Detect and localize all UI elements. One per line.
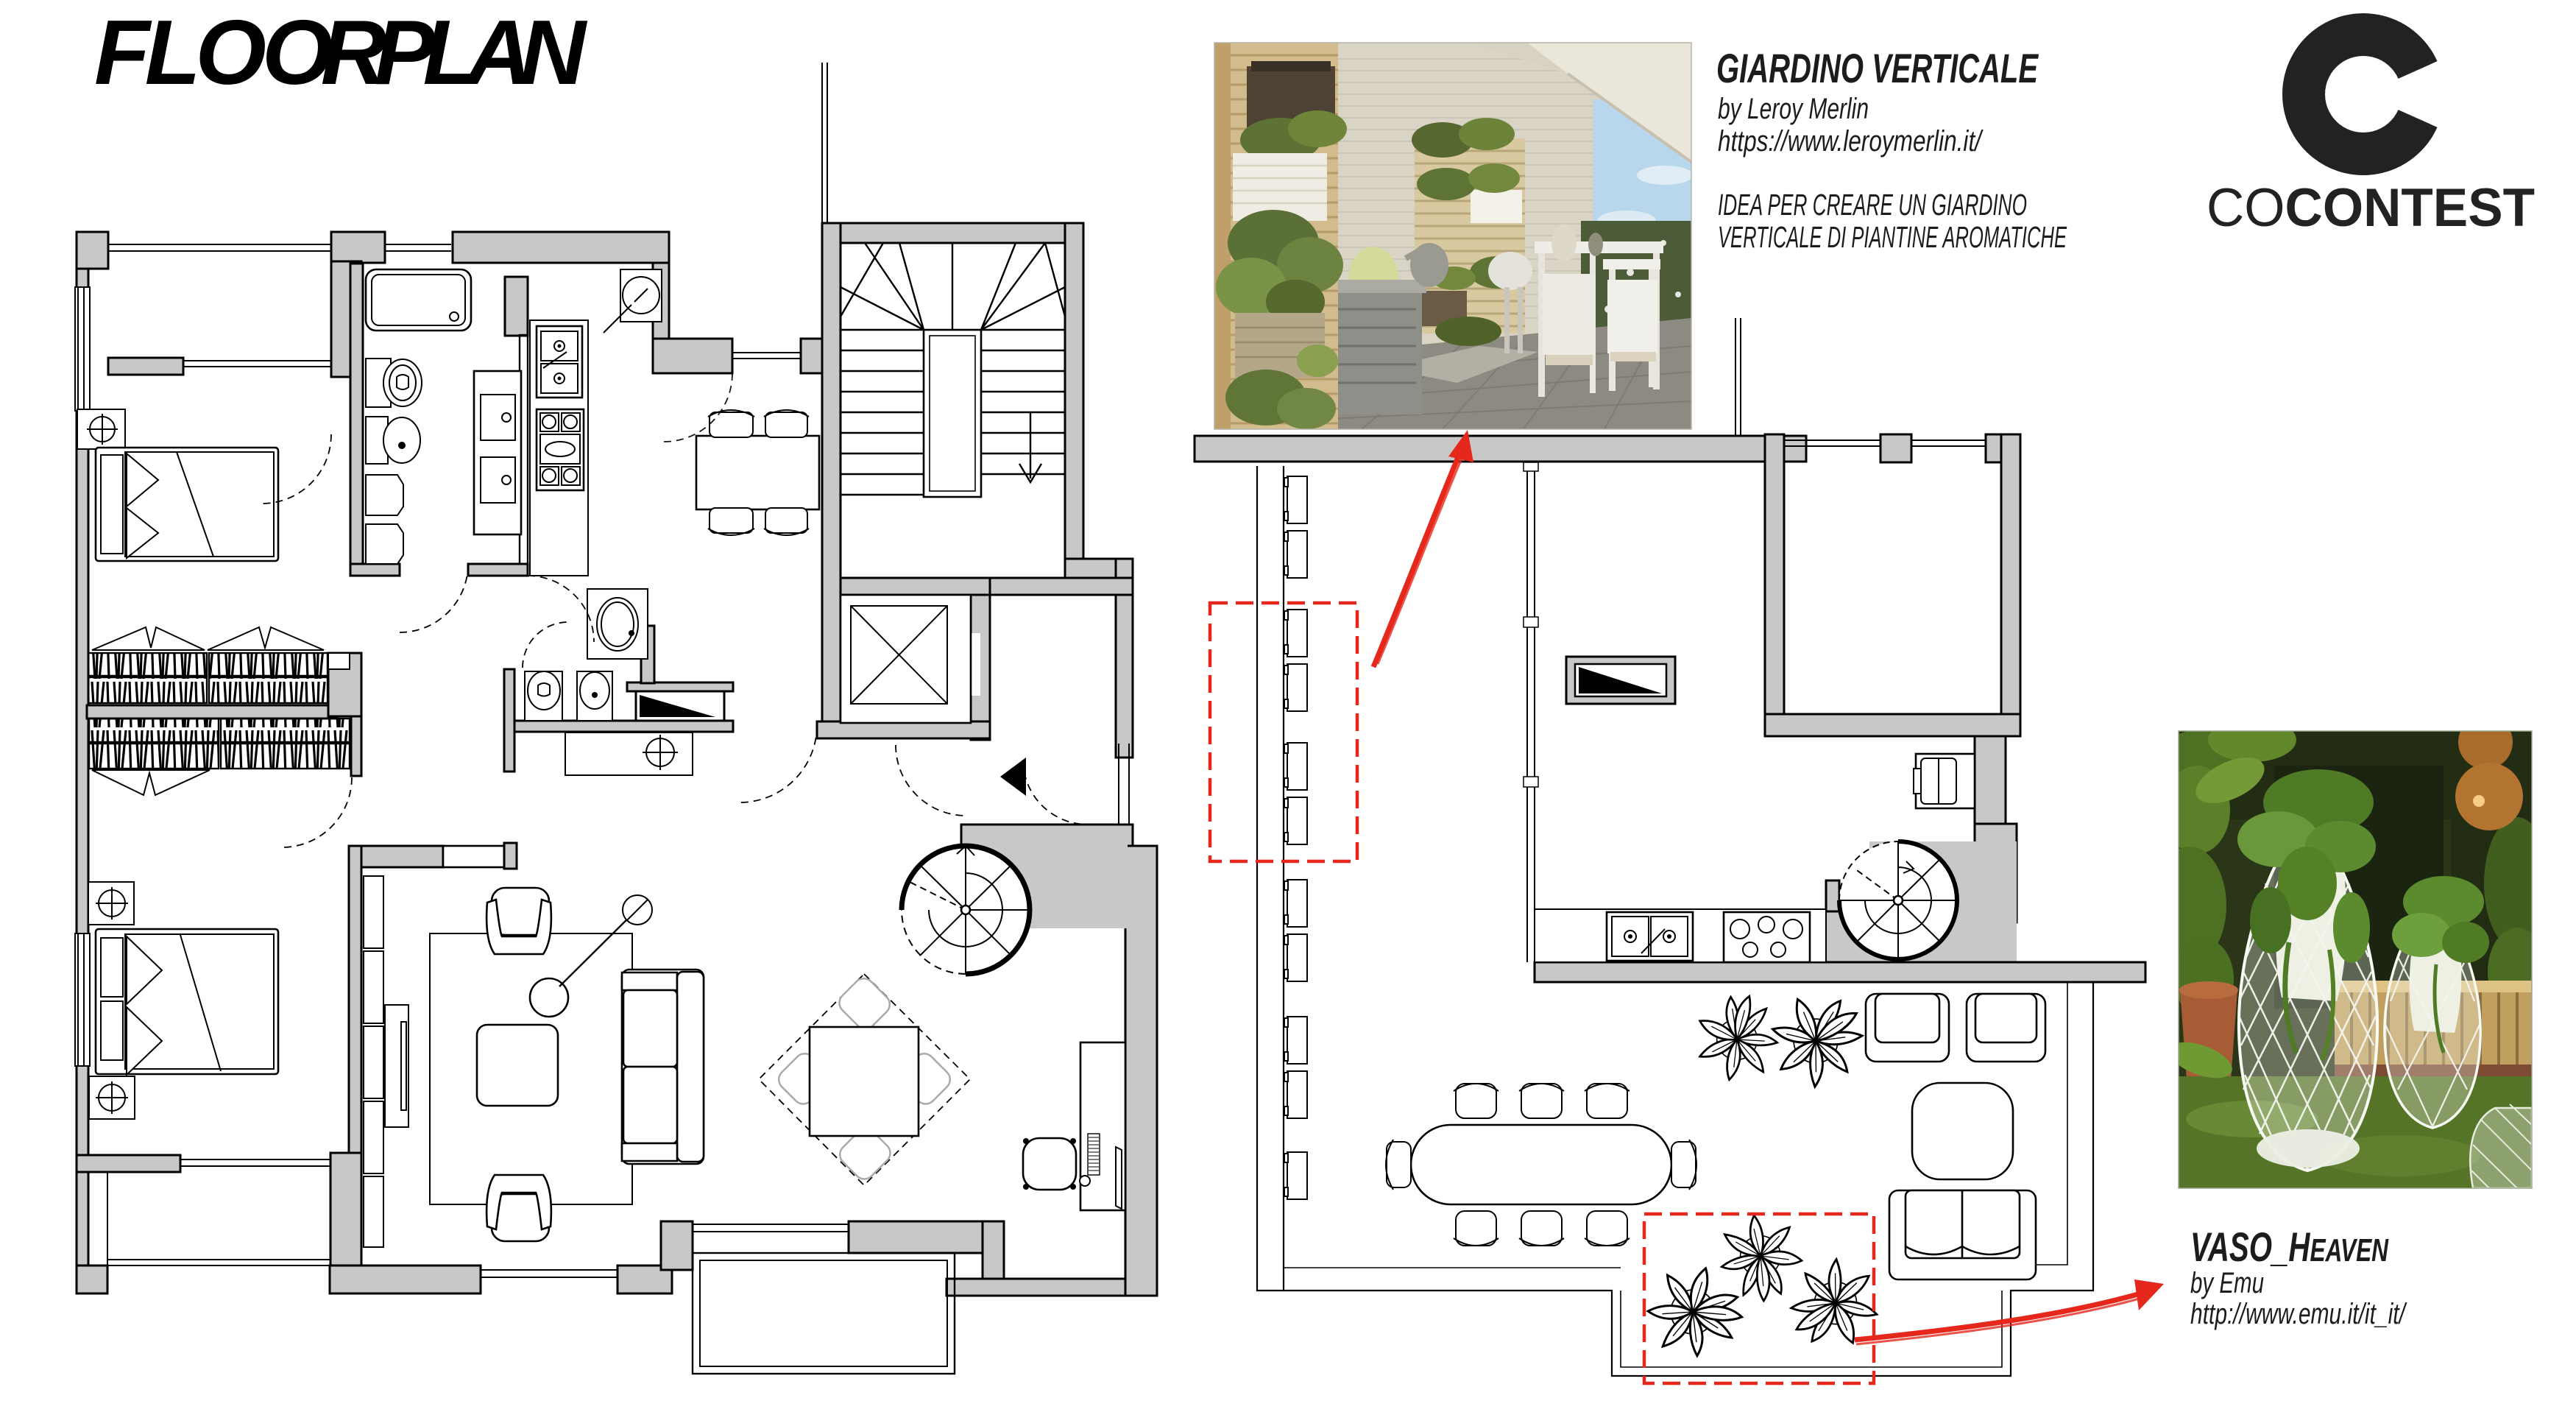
svg-text:FLO: FLO [94,2,266,104]
svg-text:https://www.leroymerlin.it/: https://www.leroymerlin.it/ [1718,125,1984,158]
svg-text:by Leroy Merlin: by Leroy Merlin [1718,93,1869,125]
svg-text:ORPLAN: ORPLAN [262,2,587,104]
svg-text:VERTICALE DI PIANTINE AROMATIC: VERTICALE DI PIANTINE AROMATICHE [1718,220,2067,254]
svg-text:by Emu: by Emu [2190,1267,2264,1299]
svg-text:http://www.emu.it/it_it/: http://www.emu.it/it_it/ [2190,1298,2407,1330]
svg-text:IDEA PER CREARE UN GIARDINO: IDEA PER CREARE UN GIARDINO [1718,188,2027,222]
svg-text:COCONTEST: COCONTEST [2207,178,2535,238]
svg-text:GIARDINO VERTICALE: GIARDINO VERTICALE [1716,45,2039,91]
